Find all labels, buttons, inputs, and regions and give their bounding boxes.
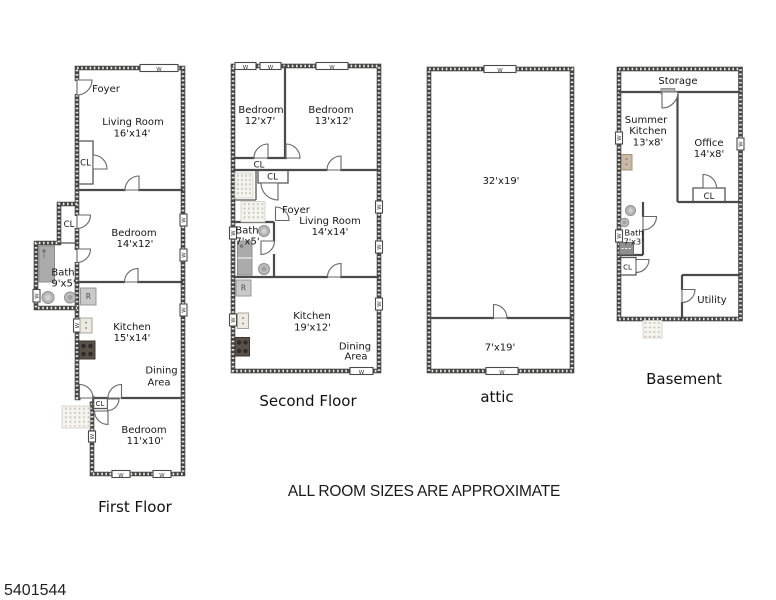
refrigerator-icon: R bbox=[81, 288, 97, 305]
svg-text:W: W bbox=[359, 370, 365, 376]
first-floor-plan: W W W W W W W W W R bbox=[33, 65, 188, 517]
window-marker: W bbox=[33, 290, 41, 303]
svg-text:W: W bbox=[159, 473, 165, 479]
office-closet-door-swing bbox=[703, 175, 717, 189]
sf-bedroom1-label: Bedroom bbox=[238, 105, 283, 116]
svg-text:W: W bbox=[499, 370, 505, 376]
ff-bedroom2-size: 11'x10' bbox=[127, 436, 164, 447]
svg-text:W: W bbox=[377, 204, 383, 210]
office-label: Office bbox=[694, 138, 723, 149]
bath-sink-icon bbox=[620, 218, 629, 227]
stairs-icon bbox=[643, 321, 662, 339]
basement-bath-size: 7'x3' bbox=[624, 237, 644, 247]
svg-text:R: R bbox=[241, 284, 246, 293]
bath-sink-icon bbox=[259, 264, 270, 275]
attic-plan: W W 32'x19' 7'x19' attic bbox=[429, 66, 572, 407]
hall-closet-door-swing bbox=[77, 215, 91, 229]
basement-plan: W W W Storage Summer Kitchen bbox=[616, 69, 745, 388]
ff-living-room-label: Living Room bbox=[102, 117, 163, 128]
toilet-icon bbox=[42, 292, 54, 304]
bath-sink-icon bbox=[65, 292, 76, 303]
window-marker: W bbox=[180, 304, 188, 316]
basement-closet-door-swing bbox=[636, 260, 649, 273]
attic-title: attic bbox=[480, 388, 513, 406]
window-marker: W bbox=[737, 138, 745, 150]
sf-living-room-label: Living Room bbox=[299, 216, 360, 227]
svg-text:W: W bbox=[182, 252, 188, 258]
basement-title: Basement bbox=[646, 370, 722, 388]
entry-door-swing bbox=[77, 80, 92, 95]
basement-closet-label: CL bbox=[623, 264, 632, 272]
window-marker: W bbox=[235, 63, 256, 71]
toilet-icon bbox=[626, 206, 636, 216]
window-marker: W bbox=[180, 214, 188, 226]
sf-closet2-door-swing bbox=[261, 183, 278, 200]
utility-label: Utility bbox=[697, 295, 726, 306]
sf-closet1-label: CL bbox=[254, 161, 265, 171]
sf-bath-size: 7'x5' bbox=[235, 237, 259, 248]
ff-living-closet-label: CL bbox=[80, 159, 91, 169]
utility-door-swing bbox=[682, 290, 695, 303]
svg-text:W: W bbox=[739, 141, 745, 147]
disclaimer-text: ALL ROOM SIZES ARE APPROXIMATE bbox=[288, 483, 560, 500]
window-marker: W bbox=[140, 65, 178, 73]
window-marker: W bbox=[350, 368, 373, 376]
svg-text:W: W bbox=[243, 65, 249, 71]
living-closet-door-swing bbox=[93, 155, 107, 169]
svg-text:R: R bbox=[86, 292, 91, 301]
bedroom2-door-swing bbox=[95, 411, 109, 425]
attic-windows: W W bbox=[484, 66, 518, 376]
office-size: 14'x8' bbox=[694, 149, 725, 160]
attic-main-size: 32'x19' bbox=[483, 176, 520, 187]
summer-kitchen-label-2: Kitchen bbox=[629, 126, 667, 137]
ff-bath-size: 9'x5' bbox=[51, 279, 75, 290]
window-marker: W bbox=[376, 298, 384, 310]
sf-living-door-swing bbox=[327, 156, 341, 170]
floorplan-page: W W W W W W W W W R bbox=[0, 0, 776, 600]
basement-walls bbox=[619, 69, 741, 319]
sf-bath-label: Bath bbox=[235, 226, 258, 237]
stairs-icon bbox=[62, 406, 90, 428]
window-marker: W bbox=[616, 230, 624, 242]
ff-bedroom1-label: Bedroom bbox=[111, 228, 156, 239]
sf-bedroom2-label: Bedroom bbox=[308, 105, 353, 116]
storage-door-swing bbox=[662, 92, 678, 108]
ff-bottom-closet-label: CL bbox=[96, 400, 105, 408]
window-marker: W bbox=[376, 201, 384, 213]
ff-bath-label: Bath bbox=[51, 268, 74, 279]
second-floor-plan: W W W W W W W W W bbox=[230, 63, 384, 411]
svg-text:W: W bbox=[231, 317, 237, 323]
window-marker: W bbox=[112, 471, 130, 479]
sf-dining-label-2: Area bbox=[344, 352, 367, 363]
svg-text:W: W bbox=[617, 233, 623, 239]
stairs-icon bbox=[235, 173, 253, 198]
dining-door-swing bbox=[108, 385, 122, 399]
window-marker: W bbox=[484, 66, 516, 74]
window-marker: W bbox=[180, 249, 188, 261]
svg-text:W: W bbox=[90, 433, 96, 439]
summer-kitchen-label-1: Summer bbox=[625, 115, 668, 126]
window-marker: W bbox=[153, 471, 171, 479]
kitchen-sink-icon bbox=[238, 313, 249, 329]
ff-foyer-label: Foyer bbox=[92, 84, 121, 95]
bottom-closet-door-swing bbox=[108, 399, 120, 411]
attic-lower-size: 7'x19' bbox=[485, 343, 516, 354]
sf-bedroom1-size: 12'x7' bbox=[245, 116, 276, 127]
svg-text:W: W bbox=[182, 217, 188, 223]
svg-text:W: W bbox=[118, 473, 124, 479]
basement-labels: Storage Summer Kitchen 13'x8' Office 14'… bbox=[623, 76, 727, 388]
basement-windows: W W W bbox=[616, 132, 745, 242]
ff-dining-label-2: Area bbox=[147, 378, 170, 389]
svg-text:W: W bbox=[268, 65, 274, 71]
summer-kitchen-size: 13'x8' bbox=[633, 138, 664, 149]
window-marker: W bbox=[316, 63, 348, 71]
stove-icon bbox=[79, 341, 95, 359]
ff-kitchen-label: Kitchen bbox=[113, 322, 151, 333]
first-floor-title: First Floor bbox=[98, 498, 172, 516]
svg-text:W: W bbox=[377, 301, 383, 307]
kitchen-sink-icon bbox=[80, 318, 92, 333]
sf-foyer-label: Foyer bbox=[282, 205, 311, 216]
sf-kitchen-door-swing bbox=[328, 264, 342, 278]
ff-living-room-size: 16'x14' bbox=[114, 129, 151, 140]
svg-text:W: W bbox=[617, 135, 623, 141]
sf-bedroom1-door-swing bbox=[254, 144, 268, 158]
attic-door-swing bbox=[494, 305, 508, 319]
window-marker: W bbox=[89, 431, 97, 442]
sf-bedroom2-door-swing bbox=[286, 144, 300, 158]
bedroom1-door-swing bbox=[125, 176, 139, 190]
ff-hall-closet-label: CL bbox=[64, 220, 75, 230]
sf-bedroom2-size: 13'x12' bbox=[315, 116, 352, 127]
office-closet-label: CL bbox=[704, 192, 715, 202]
bath-door-swing bbox=[77, 249, 91, 263]
attic-walls bbox=[429, 69, 572, 371]
stairs-icon bbox=[241, 202, 265, 223]
stove-icon bbox=[235, 338, 250, 357]
svg-text:W: W bbox=[182, 307, 188, 313]
svg-text:W: W bbox=[497, 68, 503, 74]
ff-bedroom2-label: Bedroom bbox=[121, 425, 166, 436]
toilet-icon bbox=[259, 226, 270, 237]
svg-text:W: W bbox=[329, 65, 335, 71]
basement-bath-door-swing bbox=[643, 217, 657, 231]
floorplan-drawing: W W W W W W W W W R bbox=[0, 0, 776, 600]
second-floor-title: Second Floor bbox=[259, 392, 357, 410]
ff-bedroom1-size: 14'x12' bbox=[117, 239, 154, 250]
storage-label: Storage bbox=[658, 76, 697, 87]
window-marker: W bbox=[616, 132, 624, 144]
ff-kitchen-size: 15'x14' bbox=[114, 333, 151, 344]
sf-living-room-size: 14'x14' bbox=[312, 227, 349, 238]
sf-closet2-label: CL bbox=[267, 173, 278, 183]
sf-kitchen-label: Kitchen bbox=[293, 311, 331, 322]
window-marker: W bbox=[376, 241, 384, 253]
svg-text:W: W bbox=[35, 293, 41, 299]
sf-kitchen-size: 19'x12' bbox=[294, 323, 331, 334]
window-marker: W bbox=[230, 314, 238, 326]
svg-text:W: W bbox=[156, 67, 162, 73]
ff-dining-label-1: Dining bbox=[145, 366, 177, 377]
refrigerator-icon: R bbox=[236, 280, 251, 296]
window-marker: W bbox=[486, 368, 518, 376]
kitchen-sink-icon bbox=[622, 155, 633, 171]
kitchen-door-swing bbox=[125, 269, 139, 283]
listing-number: 5401544 bbox=[4, 582, 66, 599]
rear-door-swing bbox=[80, 385, 94, 399]
window-marker: W bbox=[260, 63, 281, 71]
svg-text:W: W bbox=[377, 244, 383, 250]
